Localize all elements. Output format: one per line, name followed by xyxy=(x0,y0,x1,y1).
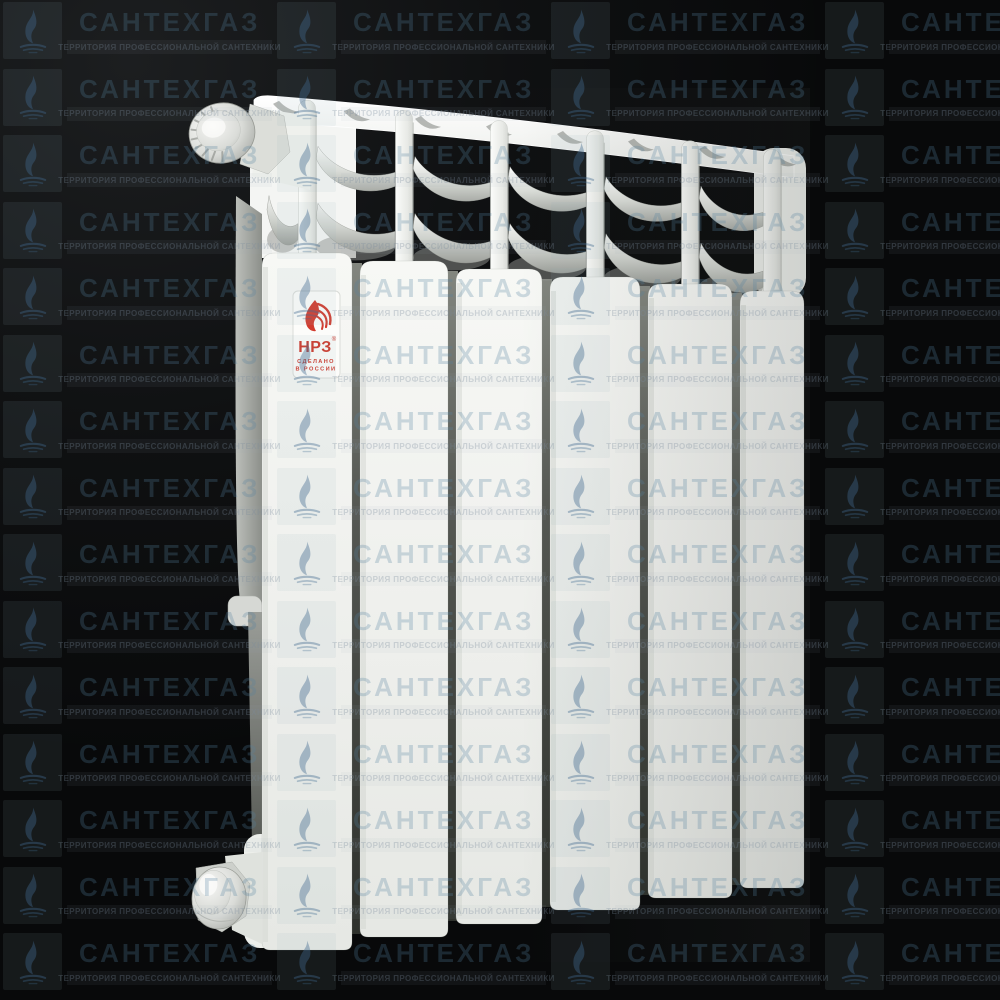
left-lower-strip xyxy=(248,612,264,852)
product-image: НРЗ ® СДЕЛАНО В РОССИИ САНТЕХГАЗТЕРРИТОР… xyxy=(0,0,1000,1000)
bottom-cap xyxy=(189,852,262,944)
right-shade-overlay xyxy=(520,88,810,962)
radiator-illustration: НРЗ ® СДЕЛАНО В РОССИИ xyxy=(0,0,1000,1000)
made-in-line1: СДЕЛАНО xyxy=(297,359,335,365)
left-side-panel xyxy=(236,196,263,612)
brand-label-text: НРЗ xyxy=(298,339,332,356)
brand-label: НРЗ ® СДЕЛАНО В РОССИИ xyxy=(293,291,340,378)
brand-reg-mark: ® xyxy=(332,336,337,343)
made-in-line2: В РОССИИ xyxy=(296,367,337,373)
